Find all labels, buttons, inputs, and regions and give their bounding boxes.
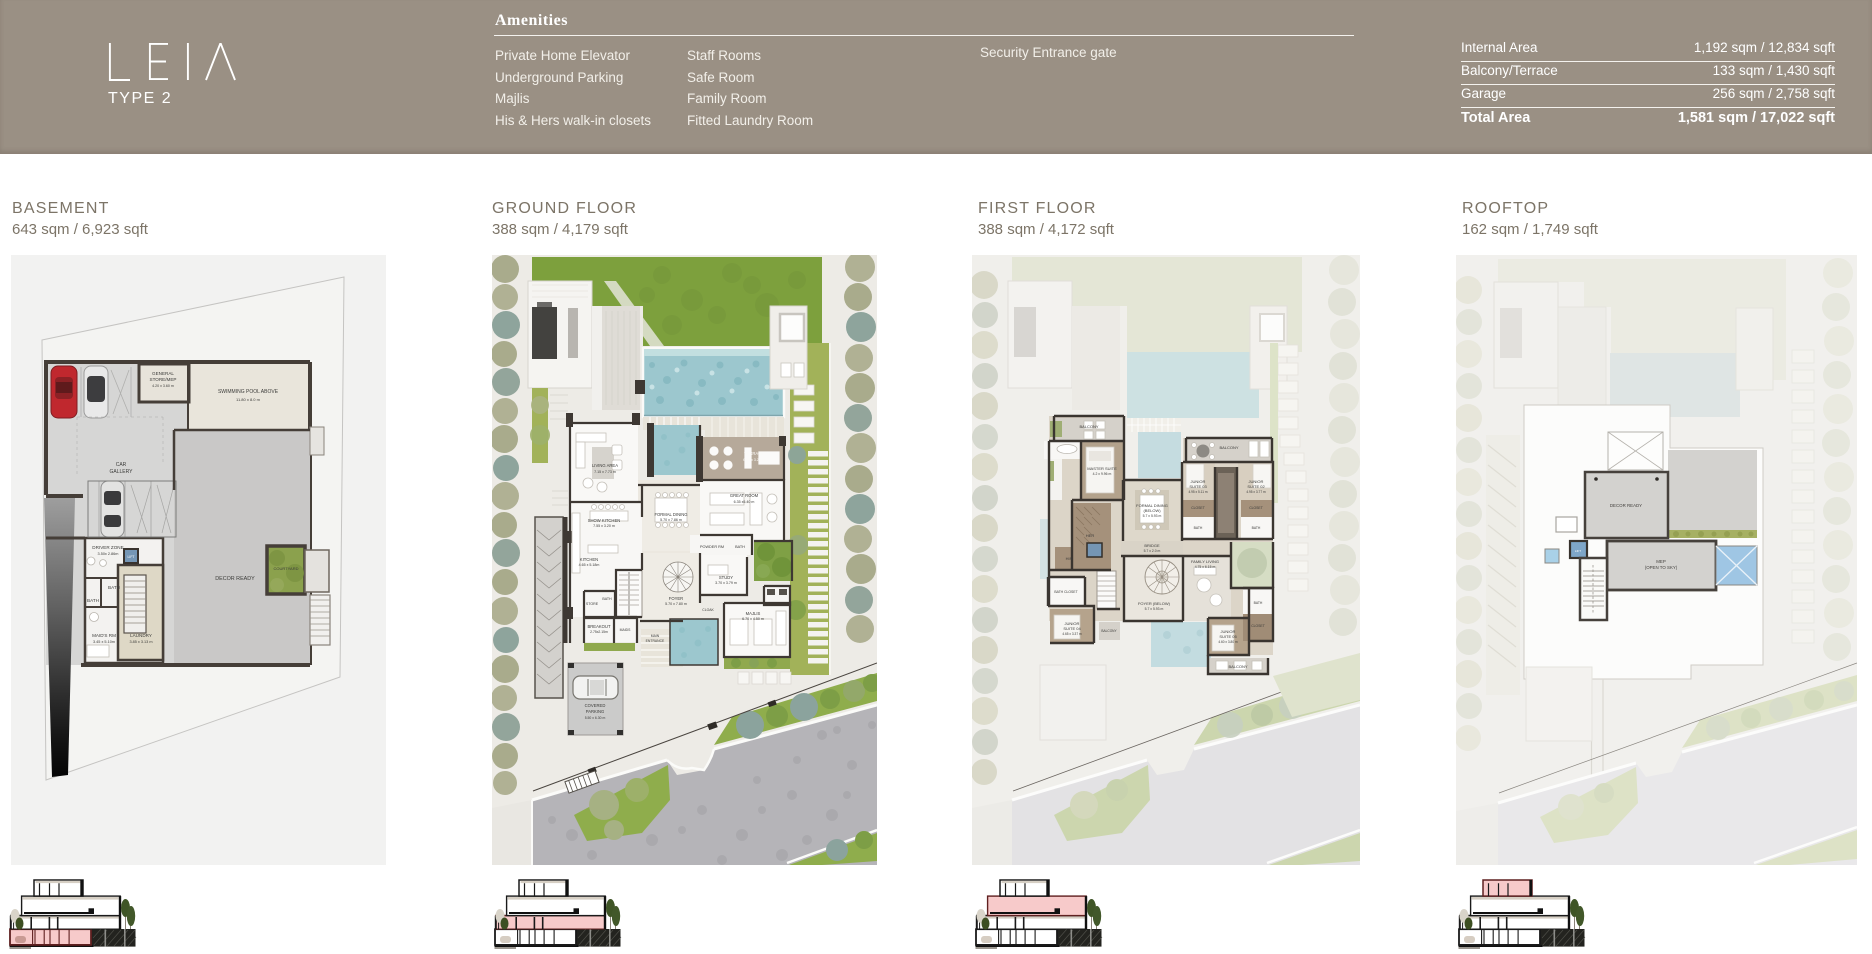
svg-text:BRIDGE: BRIDGE: [1144, 543, 1160, 548]
svg-text:5.70 x 7.86 m: 5.70 x 7.86 m: [660, 518, 682, 522]
svg-text:MAIN: MAIN: [651, 634, 660, 638]
svg-text:CAR: CAR: [116, 462, 127, 468]
svg-text:4.65 x 3.37 m: 4.65 x 3.37 m: [1062, 632, 1082, 636]
svg-text:LIFT: LIFT: [128, 555, 135, 559]
svg-text:5.7 x 5.93 m: 5.7 x 5.93 m: [1145, 607, 1164, 611]
svg-text:4.65 x 5.18m: 4.65 x 5.18m: [579, 563, 600, 567]
svg-text:DRIVER ZONE: DRIVER ZONE: [92, 545, 123, 550]
svg-text:BATH: BATH: [1252, 526, 1261, 530]
svg-text:SUITE 03: SUITE 03: [1189, 484, 1207, 489]
svg-text:5.7 x 5.93 m: 5.7 x 5.93 m: [1143, 514, 1162, 518]
svg-text:MAIDS: MAIDS: [620, 628, 631, 632]
svg-text:TERRACE: TERRACE: [744, 451, 764, 456]
svg-text:4.95 x 3.77 m: 4.95 x 3.77 m: [1246, 490, 1266, 494]
svg-text:6.45 x 3.20 m: 6.45 x 3.20 m: [743, 458, 765, 462]
svg-text:KITCHEN: KITCHEN: [580, 557, 598, 562]
svg-text:COVERED: COVERED: [585, 703, 606, 708]
svg-text:11.80 x 8.0 m: 11.80 x 8.0 m: [236, 397, 261, 402]
svg-text:PARKING: PARKING: [586, 709, 605, 714]
svg-text:SHOW KITCHEN: SHOW KITCHEN: [588, 518, 621, 523]
svg-text:LIFT: LIFT: [1575, 549, 1581, 553]
svg-text:BALCONY: BALCONY: [1219, 445, 1238, 450]
svg-text:MAJLIS: MAJLIS: [746, 611, 761, 616]
svg-text:GENERAL: GENERAL: [152, 371, 174, 376]
svg-text:4.75 x 6.15 m: 4.75 x 6.15 m: [1195, 565, 1216, 569]
svg-text:CLOSET: CLOSET: [1191, 506, 1205, 510]
svg-text:BATH: BATH: [1254, 601, 1263, 605]
svg-text:ENTRANCE: ENTRANCE: [646, 639, 665, 643]
svg-text:LAUNDRY: LAUNDRY: [130, 633, 152, 638]
svg-text:BATH: BATH: [87, 598, 99, 603]
svg-text:LIVING AREA: LIVING AREA: [592, 463, 618, 468]
svg-text:6.70 x 4.50 m: 6.70 x 4.50 m: [742, 617, 764, 621]
svg-text:5.50 x 6.30 m: 5.50 x 6.30 m: [585, 716, 606, 720]
svg-text:BALCONY: BALCONY: [1228, 664, 1247, 669]
svg-text:STORE: STORE: [586, 602, 599, 606]
svg-text:CLOSET: CLOSET: [1251, 624, 1265, 628]
svg-text:3.70 x 3.79 m: 3.70 x 3.79 m: [715, 581, 737, 585]
svg-text:BALCONY: BALCONY: [1079, 424, 1098, 429]
svg-text:SWIMMING POOL ABOVE: SWIMMING POOL ABOVE: [218, 389, 279, 395]
svg-text:7.55 x 3.20 m: 7.55 x 3.20 m: [593, 524, 615, 528]
svg-text:(BELOW): (BELOW): [1143, 508, 1161, 513]
svg-text:FAMILY LIVING: FAMILY LIVING: [1191, 559, 1219, 564]
svg-text:GALLERY: GALLERY: [110, 469, 134, 475]
svg-text:MAID'S RM: MAID'S RM: [92, 633, 116, 638]
svg-text:FOYER (BELOW): FOYER (BELOW): [1138, 601, 1171, 606]
svg-text:HER: HER: [1086, 533, 1095, 538]
svg-text:BATH: BATH: [108, 585, 120, 590]
svg-text:6.35 x5.40 m: 6.35 x5.40 m: [734, 500, 755, 504]
svg-text:DECOR READY: DECOR READY: [215, 576, 255, 582]
svg-text:3.45 x 5.10m: 3.45 x 5.10m: [93, 640, 115, 644]
svg-text:4.2 x 9.96 m: 4.2 x 9.96 m: [1093, 472, 1112, 476]
svg-text:(OPEN TO SKY): (OPEN TO SKY): [1645, 565, 1678, 570]
svg-text:SUITE 05: SUITE 05: [1219, 634, 1237, 639]
svg-text:7.15 x 7.73 m: 7.15 x 7.73 m: [594, 470, 616, 474]
svg-text:4.20 x 3.60 m: 4.20 x 3.60 m: [152, 384, 174, 388]
svg-text:4.60 x 3.80 m: 4.60 x 3.80 m: [1218, 640, 1238, 644]
svg-text:5.7 x 2.0 m: 5.7 x 2.0 m: [1144, 549, 1161, 553]
svg-text:FOYER: FOYER: [669, 596, 683, 601]
svg-text:SUITE 04: SUITE 04: [1063, 626, 1081, 631]
svg-text:3.50x 2.86m: 3.50x 2.86m: [98, 552, 119, 556]
svg-text:BALCONY: BALCONY: [1101, 629, 1117, 633]
svg-text:STORE/MEP: STORE/MEP: [150, 377, 177, 382]
svg-text:MASTER SUITE: MASTER SUITE: [1087, 466, 1117, 471]
svg-text:CLOAK: CLOAK: [702, 608, 714, 612]
svg-text:CLOSET: CLOSET: [1249, 506, 1263, 510]
svg-text:3.85 x 3.13 m: 3.85 x 3.13 m: [129, 640, 152, 644]
svg-text:5.70 x 7.80 m: 5.70 x 7.80 m: [665, 602, 687, 606]
svg-text:POWDER RM: POWDER RM: [700, 545, 724, 549]
svg-text:BREAKOUT: BREAKOUT: [587, 624, 610, 629]
svg-text:DECOR READY: DECOR READY: [1610, 503, 1642, 508]
svg-text:2.75x2.15m: 2.75x2.15m: [590, 630, 608, 634]
svg-text:4.95 x 5.11 m: 4.95 x 5.11 m: [1188, 490, 1207, 494]
svg-text:BATH CLOSET: BATH CLOSET: [1054, 590, 1077, 594]
svg-text:GREAT ROOM: GREAT ROOM: [730, 493, 759, 498]
svg-text:FORMAL DINING: FORMAL DINING: [654, 512, 687, 517]
svg-text:COURTYARD: COURTYARD: [274, 566, 299, 571]
svg-text:HIS: HIS: [1066, 556, 1073, 561]
svg-text:BATH: BATH: [1194, 526, 1203, 530]
svg-text:SUITE 02: SUITE 02: [1247, 484, 1265, 489]
svg-text:MEP: MEP: [1656, 559, 1666, 564]
svg-text:STUDY: STUDY: [719, 575, 733, 580]
svg-text:BATH: BATH: [602, 597, 612, 601]
svg-text:BATH: BATH: [735, 545, 745, 549]
